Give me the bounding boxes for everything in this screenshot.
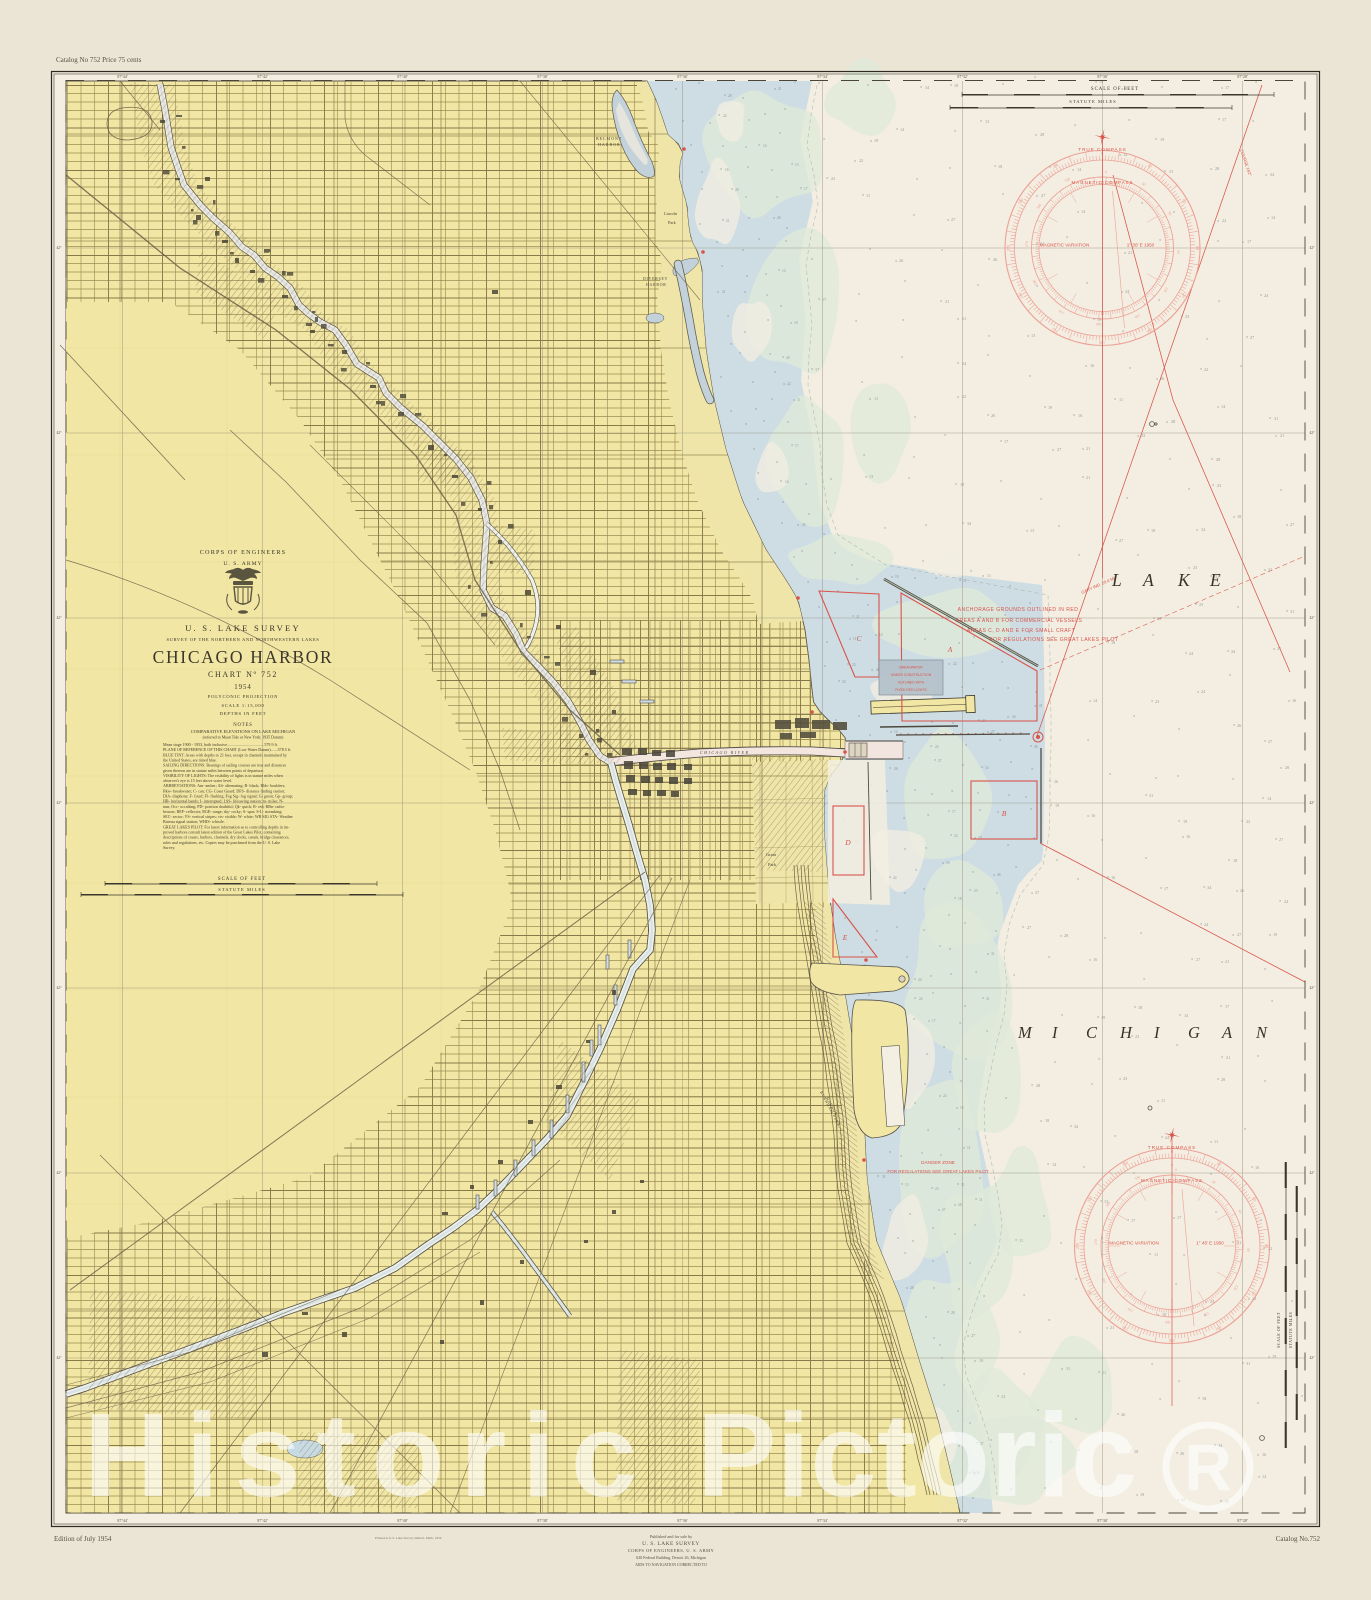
svg-text:42°: 42°	[1309, 431, 1315, 435]
svg-text:Pictoric: Pictoric	[697, 1389, 1137, 1522]
svg-text:24: 24	[893, 876, 897, 880]
svg-text:23: 23	[974, 889, 978, 893]
svg-text:16: 16	[1090, 363, 1094, 368]
svg-text:26: 26	[997, 873, 1001, 877]
svg-text:CHICAGO RIVER: CHICAGO RIVER	[700, 750, 749, 755]
svg-text:11: 11	[1019, 1238, 1023, 1243]
svg-text:28: 28	[1034, 745, 1038, 749]
svg-text:23: 23	[1155, 699, 1159, 704]
svg-text:26: 26	[991, 413, 995, 418]
svg-text:19: 19	[874, 138, 878, 143]
svg-text:27: 27	[971, 1333, 975, 1338]
svg-text:17: 17	[1177, 1215, 1181, 1220]
svg-text:87°30': 87°30'	[1097, 74, 1108, 79]
svg-text:28: 28	[951, 1311, 955, 1315]
svg-text:28: 28	[728, 94, 732, 98]
svg-text:13: 13	[1031, 333, 1035, 338]
svg-text:FOR REGULATIONS SEE GREAT LAKE: FOR REGULATIONS SEE GREAT LAKES PILOT	[887, 1169, 989, 1174]
svg-text:16: 16	[1078, 413, 1082, 418]
svg-text:22: 22	[787, 382, 791, 386]
svg-text:0: 0	[1105, 170, 1107, 174]
svg-text:17: 17	[1247, 239, 1251, 244]
svg-text:CHART Nº 752: CHART Nº 752	[208, 670, 278, 679]
svg-text:11: 11	[1161, 1098, 1165, 1103]
svg-text:19: 19	[979, 1358, 983, 1363]
svg-text:21: 21	[722, 290, 726, 294]
svg-text:26: 26	[1237, 723, 1241, 728]
svg-text:270: 270	[1006, 245, 1011, 251]
svg-text:17: 17	[804, 187, 808, 191]
svg-text:18: 18	[1101, 1015, 1105, 1020]
svg-text:42°: 42°	[56, 801, 62, 805]
svg-text:270: 270	[1094, 1239, 1098, 1245]
svg-text:SCALE OF FEET: SCALE OF FEET	[1276, 1312, 1281, 1348]
svg-text:87°34': 87°34'	[817, 74, 828, 79]
svg-text:18: 18	[954, 83, 958, 88]
svg-text:A: A	[1221, 1023, 1233, 1042]
svg-text:UNDER CONSTRUCTION: UNDER CONSTRUCTION	[891, 673, 932, 677]
svg-text:87°44': 87°44'	[117, 74, 128, 79]
svg-text:28: 28	[786, 356, 790, 360]
svg-text:Survey.: Survey.	[163, 845, 175, 850]
svg-text:22: 22	[1204, 367, 1208, 372]
svg-text:26: 26	[802, 523, 806, 527]
svg-text:14: 14	[785, 480, 789, 484]
svg-text:21: 21	[726, 219, 730, 223]
svg-text:22: 22	[1246, 819, 1250, 824]
svg-text:Park: Park	[668, 220, 677, 225]
svg-text:STATUTE MILES: STATUTE MILES	[1288, 1312, 1293, 1349]
svg-text:1954: 1954	[234, 684, 252, 691]
svg-text:11: 11	[1154, 1252, 1158, 1257]
svg-text:16: 16	[1093, 957, 1097, 962]
svg-text:E: E	[842, 933, 848, 942]
svg-text:18: 18	[958, 897, 962, 901]
svg-text:24: 24	[935, 745, 939, 749]
svg-text:19: 19	[1140, 1492, 1144, 1497]
svg-text:16: 16	[1255, 1165, 1259, 1170]
svg-text:23: 23	[842, 680, 846, 684]
svg-text:90: 90	[1246, 1248, 1250, 1252]
svg-text:27: 27	[938, 759, 942, 763]
svg-text:270: 270	[1025, 241, 1029, 247]
svg-text:24: 24	[943, 1094, 947, 1098]
svg-text:23: 23	[1217, 483, 1221, 488]
svg-text:42°: 42°	[1309, 1356, 1315, 1360]
svg-text:23: 23	[1185, 314, 1189, 319]
svg-text:17: 17	[1004, 439, 1008, 444]
svg-text:MAGNETIC VARIATION: MAGNETIC VARIATION	[1040, 243, 1090, 248]
svg-text:Published and for sale by: Published and for sale by	[650, 1534, 693, 1539]
svg-text:27: 27	[942, 1208, 946, 1212]
svg-text:180: 180	[1165, 1320, 1171, 1324]
svg-text:19: 19	[895, 575, 899, 579]
svg-text:0: 0	[1175, 1168, 1177, 1172]
svg-text:ANCHORAGE GROUNDS OUTLINED IN: ANCHORAGE GROUNDS OUTLINED IN RED	[958, 607, 1079, 613]
svg-text:Lincoln: Lincoln	[664, 211, 678, 216]
svg-text:31: 31	[1246, 1361, 1250, 1366]
svg-text:87°42': 87°42'	[257, 74, 268, 79]
svg-text:G: G	[1188, 1023, 1200, 1042]
svg-text:21: 21	[1128, 250, 1132, 255]
svg-text:42°: 42°	[56, 431, 62, 435]
svg-text:27: 27	[1041, 193, 1045, 198]
svg-text:16: 16	[1186, 834, 1190, 839]
svg-text:R: R	[1184, 1430, 1232, 1504]
svg-text:DANGER ZONE: DANGER ZONE	[921, 1160, 955, 1165]
svg-text:17: 17	[1225, 85, 1229, 90]
svg-text:19: 19	[960, 1106, 964, 1110]
svg-text:TRUE COMPASS: TRUE COMPASS	[1078, 147, 1126, 152]
svg-text:13: 13	[905, 1183, 909, 1187]
svg-text:27: 27	[991, 730, 995, 734]
svg-text:21: 21	[945, 299, 949, 304]
svg-text:27: 27	[1250, 335, 1254, 340]
svg-text:STATUTE MILES: STATUTE MILES	[218, 887, 265, 892]
svg-text:AREAS A AND B FOR COMMERCIAL V: AREAS A AND B FOR COMMERCIAL VESSELS	[956, 618, 1083, 624]
svg-text:Park: Park	[768, 862, 777, 867]
svg-text:87°38': 87°38'	[537, 74, 548, 79]
svg-text:21: 21	[963, 579, 967, 583]
svg-text:34: 34	[1012, 715, 1016, 719]
svg-text:18: 18	[1202, 1396, 1206, 1401]
svg-text:17: 17	[815, 367, 819, 372]
svg-text:POLYCONIC PROJECTION: POLYCONIC PROJECTION	[208, 694, 279, 699]
svg-text:13: 13	[1030, 528, 1034, 533]
svg-text:21: 21	[1086, 475, 1090, 480]
svg-text:18: 18	[1233, 858, 1237, 863]
svg-text:14: 14	[985, 766, 989, 770]
svg-text:28: 28	[910, 1286, 914, 1290]
svg-text:17: 17	[1164, 886, 1168, 891]
svg-text:11: 11	[866, 193, 870, 198]
svg-text:HARBOR: HARBOR	[646, 283, 667, 287]
svg-text:17: 17	[1222, 117, 1226, 122]
svg-text:19: 19	[1055, 803, 1059, 808]
svg-text:22: 22	[919, 997, 923, 1001]
svg-text:27: 27	[1290, 522, 1294, 527]
svg-text:14: 14	[879, 633, 883, 637]
svg-text:17: 17	[795, 444, 799, 448]
svg-text:23: 23	[1123, 1076, 1127, 1081]
svg-text:87°40': 87°40'	[397, 74, 408, 79]
svg-text:TRUE COMPASS: TRUE COMPASS	[1148, 1145, 1196, 1150]
svg-text:Edition of July 1954: Edition of July 1954	[54, 1535, 112, 1543]
svg-text:28: 28	[1221, 1077, 1225, 1082]
svg-text:23: 23	[1135, 1034, 1139, 1039]
svg-text:11: 11	[1066, 1366, 1070, 1371]
svg-text:23: 23	[852, 663, 856, 667]
svg-text:21: 21	[1225, 959, 1229, 964]
svg-text:42°: 42°	[56, 986, 62, 990]
svg-text:BELMONT: BELMONT	[596, 136, 622, 141]
svg-text:16: 16	[946, 861, 950, 865]
svg-text:87°36': 87°36'	[677, 1518, 688, 1523]
svg-text:M: M	[1017, 1023, 1033, 1042]
svg-text:SCALE OF FEET: SCALE OF FEET	[218, 877, 266, 882]
svg-text:22: 22	[1222, 218, 1226, 223]
svg-text:Catalog No.752: Catalog No.752	[1276, 1535, 1321, 1543]
svg-text:DEPTHS IN FEET: DEPTHS IN FEET	[220, 711, 267, 716]
svg-text:270: 270	[1075, 1243, 1080, 1249]
svg-text:31: 31	[1149, 793, 1153, 798]
svg-text:U. S. LAKE SURVEY: U. S. LAKE SURVEY	[642, 1541, 700, 1547]
svg-text:42°: 42°	[1309, 1171, 1315, 1175]
svg-text:27: 27	[1027, 925, 1031, 930]
svg-text:42°: 42°	[1309, 801, 1315, 805]
svg-text:87°36': 87°36'	[677, 74, 688, 79]
svg-text:31: 31	[961, 1183, 965, 1187]
svg-text:27: 27	[1035, 890, 1039, 895]
svg-text:18: 18	[1237, 514, 1241, 519]
svg-text:MAGNETIC COMPASS: MAGNETIC COMPASS	[1141, 1178, 1203, 1183]
svg-text:11: 11	[797, 398, 801, 402]
svg-text:21: 21	[1280, 433, 1284, 438]
svg-text:42°: 42°	[56, 1171, 62, 1175]
svg-text:NOTES: NOTES	[233, 723, 252, 728]
svg-text:19: 19	[1048, 405, 1052, 410]
svg-text:23: 23	[1193, 565, 1197, 570]
svg-text:31: 31	[1169, 169, 1173, 174]
svg-text:42°: 42°	[56, 1356, 62, 1360]
svg-text:19: 19	[1273, 932, 1277, 937]
svg-text:42°: 42°	[1309, 616, 1315, 620]
svg-text:31: 31	[1290, 609, 1294, 614]
svg-text:1° 30' E 1950: 1° 30' E 1950	[1127, 243, 1155, 248]
svg-text:L: L	[1111, 570, 1122, 590]
svg-text:B: B	[1002, 809, 1007, 818]
svg-text:11: 11	[1214, 1139, 1218, 1144]
svg-text:28: 28	[1036, 1083, 1040, 1088]
svg-text:42°: 42°	[1309, 986, 1315, 990]
svg-text:24: 24	[918, 978, 922, 982]
svg-text:CHICAGO HARBOR: CHICAGO HARBOR	[153, 647, 334, 667]
svg-text:21: 21	[778, 87, 782, 91]
svg-text:16: 16	[725, 168, 729, 172]
svg-text:13: 13	[985, 119, 989, 124]
svg-text:180: 180	[1099, 340, 1105, 345]
svg-text:26: 26	[1240, 888, 1244, 893]
svg-text:A: A	[1142, 570, 1154, 590]
svg-text:31: 31	[991, 952, 995, 956]
svg-text:N: N	[1255, 1023, 1268, 1042]
svg-text:E: E	[1209, 570, 1221, 590]
svg-text:27: 27	[1196, 957, 1200, 962]
svg-text:42°: 42°	[56, 246, 62, 250]
svg-text:31: 31	[1274, 416, 1278, 421]
svg-text:27: 27	[951, 217, 955, 222]
svg-text:18: 18	[998, 164, 1002, 169]
svg-text:11: 11	[874, 396, 878, 401]
svg-text:14: 14	[763, 144, 767, 148]
svg-text:26: 26	[899, 258, 903, 263]
svg-text:CORPS OF ENGINEERS: CORPS OF ENGINEERS	[200, 549, 287, 556]
svg-text:19: 19	[1183, 819, 1187, 824]
svg-text:90: 90	[1195, 246, 1200, 250]
svg-text:BREAKWATER: BREAKWATER	[899, 666, 923, 670]
svg-text:27: 27	[1268, 739, 1272, 744]
svg-text:16: 16	[1091, 813, 1095, 818]
svg-text:23: 23	[954, 834, 958, 838]
svg-text:16: 16	[1054, 779, 1058, 784]
svg-text:22: 22	[723, 114, 727, 118]
svg-text:H: H	[1119, 1023, 1133, 1042]
svg-text:COMPARATIVE ELEVATIONS ON L: COMPARATIVE ELEVATIONS ON LAKE MICHIGAN	[191, 729, 296, 734]
svg-text:11: 11	[1119, 397, 1123, 402]
svg-text:21: 21	[1110, 1325, 1114, 1330]
svg-text:11: 11	[979, 1198, 983, 1202]
svg-text:K: K	[1177, 570, 1191, 590]
svg-text:21: 21	[1039, 704, 1043, 708]
svg-text:14: 14	[782, 269, 786, 273]
svg-text:DIVERSEY: DIVERSEY	[643, 277, 668, 281]
svg-text:HARBOR: HARBOR	[598, 142, 621, 147]
svg-text:28: 28	[958, 1203, 962, 1207]
svg-text:26: 26	[993, 257, 997, 262]
svg-text:21: 21	[856, 615, 860, 619]
svg-text:22: 22	[831, 176, 835, 181]
svg-text:1° 45' E 1950: 1° 45' E 1950	[1196, 1241, 1224, 1246]
svg-text:C: C	[1086, 1023, 1098, 1042]
svg-text:MAGNETIC COMPASS: MAGNETIC COMPASS	[1071, 180, 1133, 185]
svg-text:19: 19	[1160, 137, 1164, 142]
svg-text:13: 13	[795, 163, 799, 167]
svg-text:26: 26	[894, 767, 898, 771]
svg-text:28: 28	[1285, 765, 1289, 770]
svg-text:28: 28	[1215, 166, 1219, 171]
svg-text:Grant: Grant	[766, 852, 777, 857]
svg-text:AREAS C, D AND E FOR SMALL CRA: AREAS C, D AND E FOR SMALL CRAFT	[967, 628, 1075, 634]
svg-text:17: 17	[952, 810, 956, 814]
svg-text:90: 90	[1176, 250, 1180, 254]
svg-text:SURVEY OF THE NORTHERN AND: SURVEY OF THE NORTHERN AND NORTHWESTERN …	[167, 637, 320, 642]
svg-text:18: 18	[1045, 1118, 1049, 1123]
svg-text:16: 16	[1262, 1452, 1266, 1457]
svg-text:21: 21	[1226, 1055, 1230, 1060]
svg-text:17: 17	[1131, 1218, 1135, 1223]
svg-text:SCALE OF FEET: SCALE OF FEET	[1091, 87, 1139, 92]
svg-text:17: 17	[932, 1019, 936, 1023]
svg-text:FIXED RED LIGHTS: FIXED RED LIGHTS	[895, 688, 927, 692]
svg-text:D: D	[844, 838, 851, 847]
svg-text:23: 23	[1199, 602, 1203, 607]
svg-text:18: 18	[794, 321, 798, 325]
svg-text:16: 16	[1111, 875, 1115, 880]
svg-text:19: 19	[960, 482, 964, 487]
svg-text:AIDS TO NAVIGATION CORRECTED T: AIDS TO NAVIGATION CORRECTED TO	[635, 1562, 707, 1567]
svg-text:28: 28	[735, 188, 739, 192]
svg-text:13: 13	[869, 474, 873, 479]
svg-text:18: 18	[1151, 528, 1155, 533]
svg-text:11: 11	[967, 1146, 971, 1150]
svg-text:U. S. ARMY: U. S. ARMY	[223, 561, 262, 567]
svg-text:27: 27	[1237, 932, 1241, 937]
svg-text:27: 27	[1279, 837, 1283, 842]
svg-text:14: 14	[894, 730, 898, 734]
svg-text:42°: 42°	[56, 616, 62, 620]
svg-text:MAGNETIC VARIATION: MAGNETIC VARIATION	[1109, 1241, 1159, 1246]
svg-text:(referred to Mean Tide at New: (referred to Mean Tide at New York; 1935…	[203, 735, 284, 740]
svg-text:16: 16	[1292, 698, 1296, 703]
svg-text:42°: 42°	[1309, 246, 1315, 250]
svg-text:FOR REGULATIONS SEE GREAT LAKE: FOR REGULATIONS SEE GREAT LAKES PILOT	[990, 637, 1119, 643]
svg-text:U. S. LAKE SURVEY: U. S. LAKE SURVEY	[185, 623, 301, 633]
svg-text:21: 21	[1086, 446, 1090, 451]
svg-text:28: 28	[1064, 933, 1068, 938]
svg-text:22: 22	[859, 158, 863, 163]
svg-text:28: 28	[1171, 419, 1175, 424]
svg-text:26: 26	[777, 216, 781, 220]
svg-text:13: 13	[987, 574, 991, 578]
svg-text:31: 31	[986, 997, 990, 1001]
svg-text:87°28': 87°28'	[1237, 74, 1248, 79]
svg-text:87°28': 87°28'	[1237, 1518, 1248, 1523]
svg-text:18: 18	[1138, 1005, 1142, 1010]
svg-text:28: 28	[1216, 457, 1220, 462]
svg-text:28: 28	[1040, 132, 1044, 137]
svg-text:A: A	[947, 645, 953, 654]
svg-text:90: 90	[1264, 1244, 1269, 1248]
svg-text:180: 180	[1096, 322, 1102, 326]
svg-text:27: 27	[1057, 447, 1061, 452]
svg-text:Catalog No 752 Price 75 cents: Catalog No 752 Price 75 cents	[56, 56, 142, 64]
svg-text:87°32': 87°32'	[957, 74, 968, 79]
svg-text:STATUTE MILES: STATUTE MILES	[1069, 99, 1116, 104]
svg-text:31: 31	[882, 1175, 886, 1179]
svg-text:27: 27	[1119, 538, 1123, 543]
svg-text:OUTLINED WITH: OUTLINED WITH	[898, 681, 925, 685]
svg-text:23: 23	[935, 1187, 939, 1191]
svg-text:17: 17	[1225, 1004, 1229, 1009]
svg-text:22: 22	[953, 662, 957, 666]
